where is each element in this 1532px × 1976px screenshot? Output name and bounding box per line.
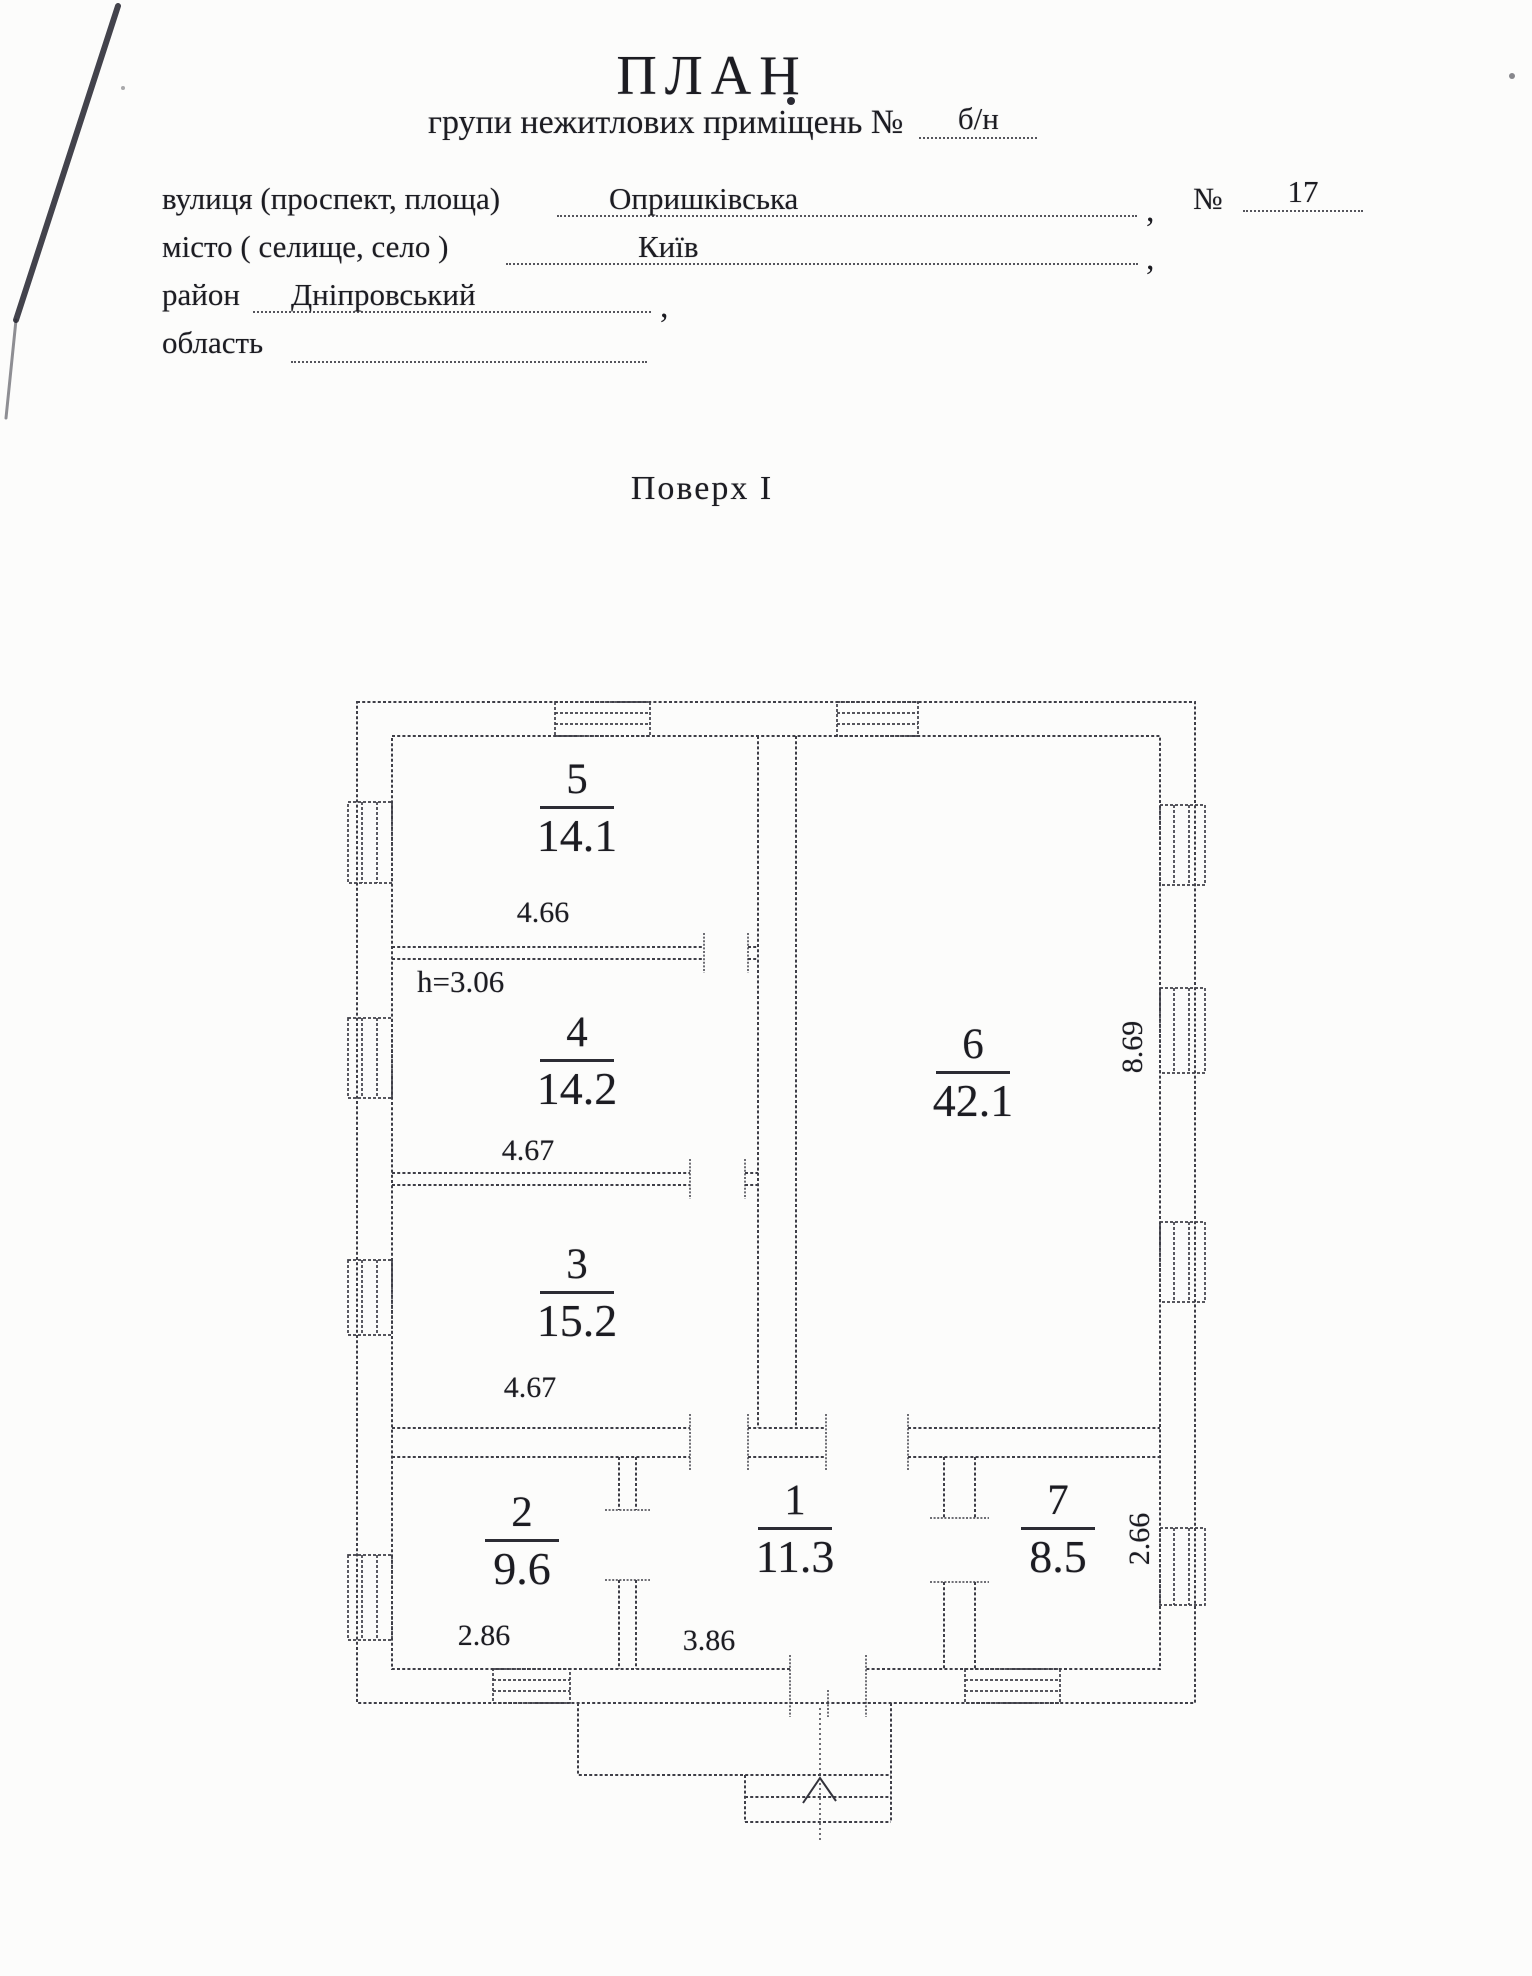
window-top-1	[555, 702, 650, 736]
wall-left-block-room6	[758, 736, 796, 1428]
room-7-number: 7	[1021, 1478, 1095, 1530]
window-right-room6-a	[1160, 805, 1205, 885]
room-5-label: 5 14.1	[487, 757, 667, 861]
document-title: ПЛАН	[0, 44, 1424, 108]
house-number-value: 17	[1243, 174, 1363, 212]
district-value: Дніпровський	[253, 277, 651, 313]
window-top-2	[837, 702, 918, 736]
room-1-number: 1	[758, 1478, 832, 1530]
room-2-area: 9.6	[432, 1544, 612, 1594]
entrance-arrow	[803, 1705, 836, 1840]
room-3-number: 3	[540, 1242, 614, 1294]
district-label: район	[162, 277, 240, 313]
street-comma: ,	[1146, 192, 1155, 230]
window-left-room2	[348, 1555, 392, 1640]
district-comma: ,	[660, 288, 669, 326]
window-left-room4	[348, 1018, 392, 1098]
room-6-number: 6	[936, 1022, 1010, 1074]
street-label: вулиця (проспект, площа)	[162, 181, 500, 217]
room-2-dimension: 2.86	[424, 1619, 544, 1653]
document-subtitle: групи нежитлових приміщень №б/н	[428, 104, 1037, 143]
wall-upper-lower-band	[392, 1428, 1160, 1457]
room-3-label: 3 15.2	[487, 1242, 667, 1346]
scanned-plan-page: ПЛАН групи нежитлових приміщень №б/н вул…	[0, 0, 1532, 1976]
room-4-area: 14.2	[487, 1064, 667, 1114]
street-value: Опришківська	[557, 181, 1137, 217]
wall-room4-room3	[392, 1173, 758, 1185]
window-left-room5	[348, 802, 392, 883]
house-number-sign: №	[1193, 181, 1223, 217]
room-7-label: 7 8.5	[968, 1478, 1148, 1582]
window-left-room3	[348, 1260, 392, 1335]
room-5-number: 5	[540, 757, 614, 809]
window-bottom-1	[493, 1669, 570, 1703]
plan-number-value: б/н	[919, 101, 1037, 139]
room-4-label: 4 14.2	[487, 1010, 667, 1114]
room-4-dimension: 4.67	[468, 1134, 588, 1168]
floor-title: Поверх I	[0, 470, 1404, 508]
room-4-number: 4	[540, 1010, 614, 1062]
room-6-dimension: 8.69	[1116, 987, 1150, 1107]
room-6-area: 42.1	[883, 1076, 1063, 1126]
window-right-room7	[1160, 1528, 1205, 1605]
room-7-area: 8.5	[968, 1532, 1148, 1582]
room-1-label: 1 11.3	[705, 1478, 885, 1582]
oblast-value	[291, 325, 647, 363]
room-7-dimension: 2.66	[1123, 1479, 1157, 1599]
ceiling-height-note: h=3.06	[417, 964, 504, 1000]
room-3-dimension: 4.67	[470, 1371, 590, 1405]
window-right-room6-c	[1160, 1222, 1205, 1302]
room-1-area: 11.3	[705, 1532, 885, 1582]
city-value: Київ	[506, 229, 1138, 265]
window-bottom-2	[965, 1669, 1060, 1703]
room-6-label: 6 42.1	[883, 1022, 1063, 1126]
oblast-label: область	[162, 325, 263, 361]
room-5-dimension: 4.66	[483, 896, 603, 930]
city-comma: ,	[1146, 240, 1155, 278]
city-label: місто ( селище, село )	[162, 229, 448, 265]
wall-room5-room4	[392, 947, 758, 959]
room-5-area: 14.1	[487, 811, 667, 861]
wall-room2-room1	[619, 1457, 636, 1669]
room-1-dimension: 3.86	[649, 1624, 769, 1658]
subtitle-label: групи нежитлових приміщень №	[428, 104, 903, 141]
room-2-label: 2 9.6	[432, 1490, 612, 1594]
porch-outline	[578, 1703, 891, 1822]
window-right-room6-b	[1160, 988, 1205, 1073]
room-2-number: 2	[485, 1490, 559, 1542]
room-3-area: 15.2	[487, 1296, 667, 1346]
